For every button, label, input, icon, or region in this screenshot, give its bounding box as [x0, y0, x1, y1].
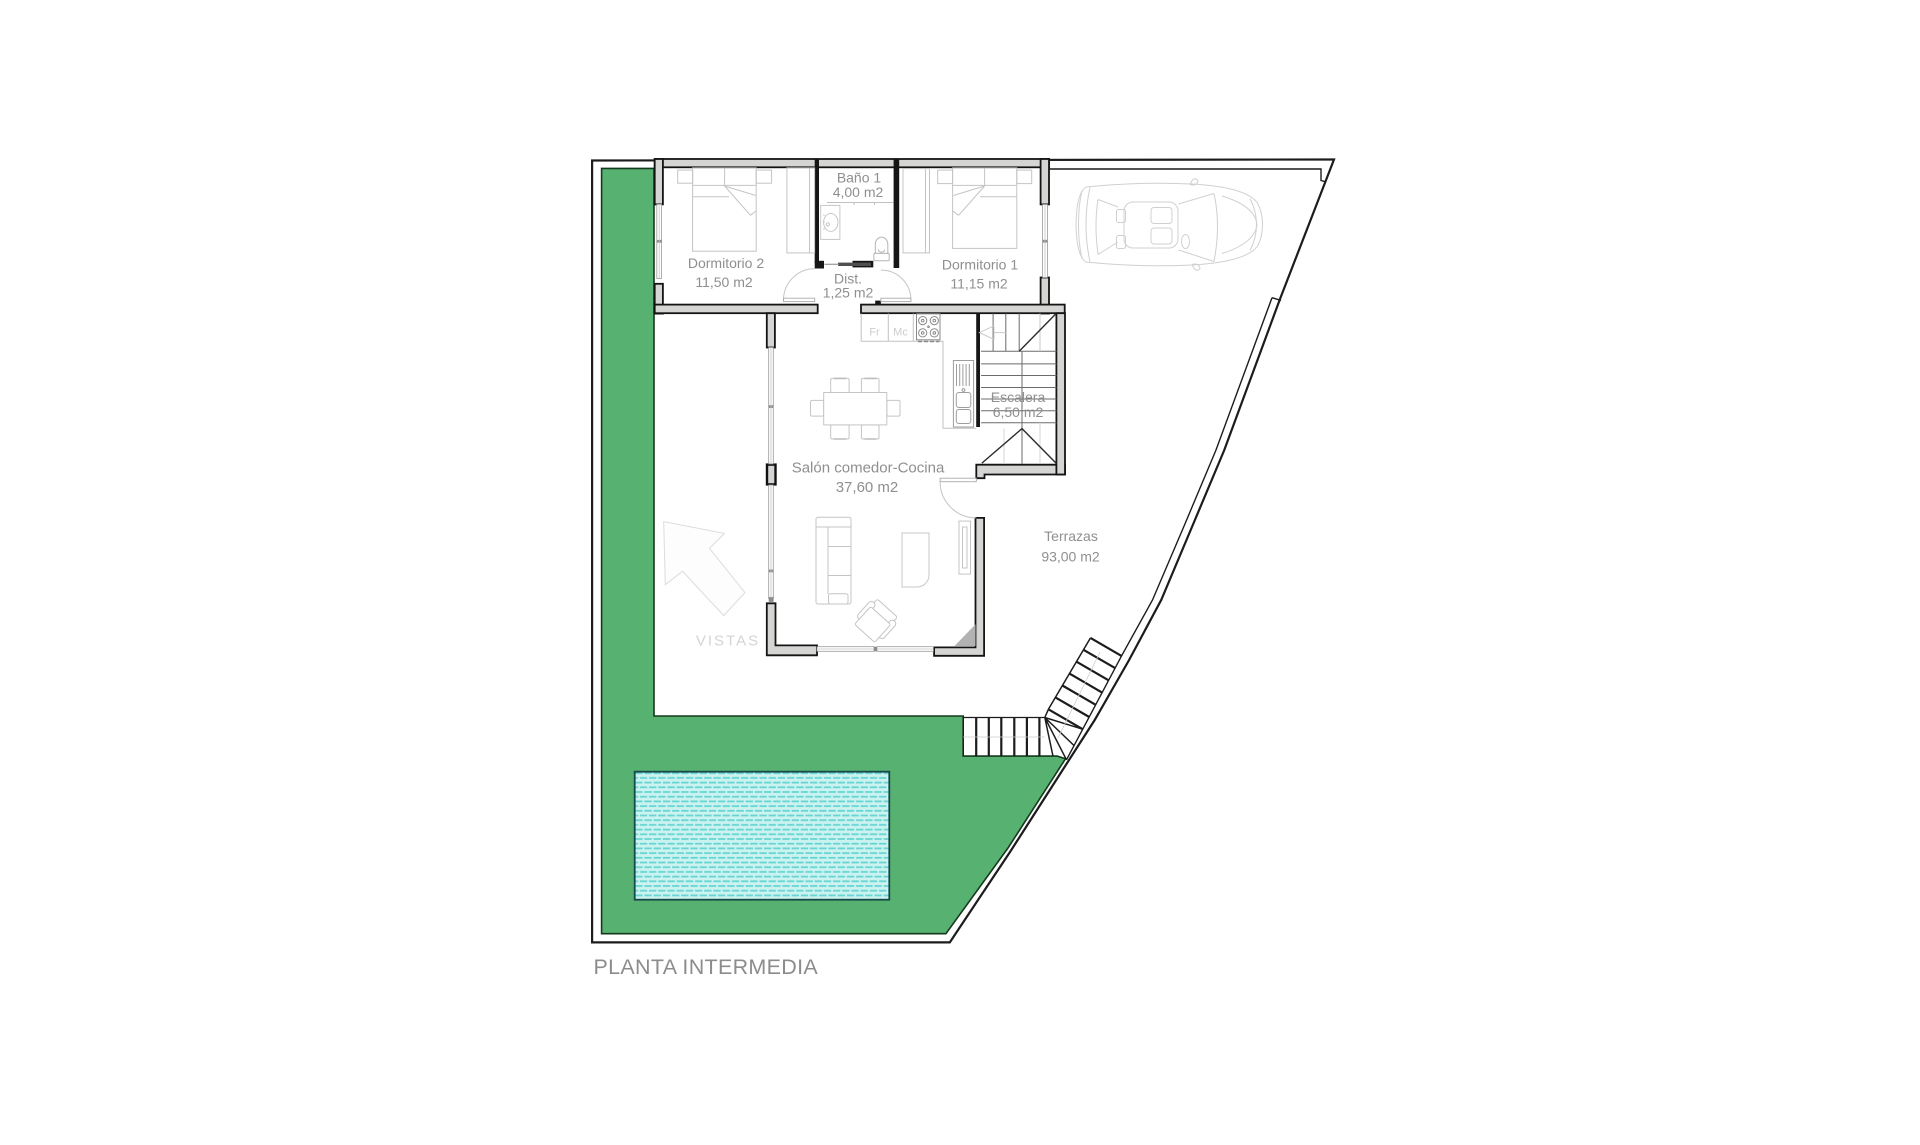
svg-text:Salón comedor-Cocina: Salón comedor-Cocina [792, 459, 945, 476]
svg-text:37,60 m2: 37,60 m2 [836, 479, 899, 496]
svg-text:11,50 m2: 11,50 m2 [695, 274, 753, 290]
svg-text:Terrazas: Terrazas [1044, 528, 1098, 544]
svg-text:PLANTA INTERMEDIA: PLANTA INTERMEDIA [594, 955, 819, 979]
svg-text:Fr: Fr [869, 327, 880, 339]
svg-text:93,00 m2: 93,00 m2 [1041, 549, 1100, 565]
svg-text:Dormitorio 1: Dormitorio 1 [942, 256, 1018, 272]
svg-text:Baño 1: Baño 1 [837, 169, 882, 185]
svg-text:Mc: Mc [893, 327, 908, 339]
svg-text:VISTAS: VISTAS [696, 633, 760, 650]
svg-text:6,50 m2: 6,50 m2 [993, 404, 1044, 420]
svg-text:11,15 m2: 11,15 m2 [950, 276, 1008, 292]
svg-text:4,00 m2: 4,00 m2 [833, 184, 884, 200]
svg-text:Escalera: Escalera [991, 389, 1046, 405]
svg-text:1,25 m2: 1,25 m2 [823, 285, 874, 301]
svg-text:Dormitorio 2: Dormitorio 2 [688, 255, 764, 271]
